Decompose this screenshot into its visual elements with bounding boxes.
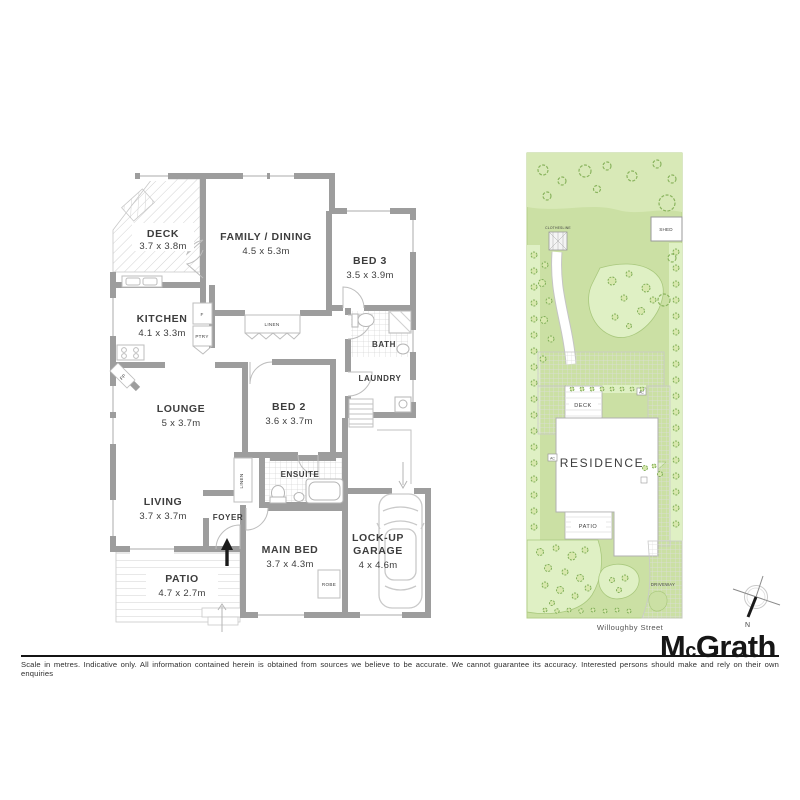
room-dims-patio: 4.7 x 2.7m: [158, 588, 205, 599]
garden-bed-right: [669, 243, 682, 541]
room-dims-deck: 3.7 x 3.8m: [139, 241, 186, 252]
room-label-family-dining: FAMILY / DINING: [220, 231, 312, 243]
room-dims-garage: 4 x 4.6m: [359, 560, 398, 571]
floorplan-page: DECK 3.7 x 3.8m FAMILY / DINING 4.5 x 5.…: [0, 0, 800, 800]
disclaimer-text: Scale in metres. Indicative only. All in…: [21, 655, 779, 678]
label-robe: ROBE: [322, 582, 336, 587]
clothesline-label: CLOTHESLINE: [545, 226, 571, 230]
kitchen-sink-icon: [122, 276, 162, 287]
hws-unit: [641, 477, 647, 483]
plan-canvas: DECK 3.7 x 3.8m FAMILY / DINING 4.5 x 5.…: [0, 0, 800, 800]
label-linen: LINEN: [264, 322, 279, 327]
room-dims-bed2: 3.6 x 3.7m: [265, 416, 312, 427]
room-label-garage-2: GARAGE: [353, 545, 403, 557]
label-fridge: F: [200, 312, 203, 317]
compass-icon: N: [733, 576, 780, 629]
patio-step: [208, 617, 238, 625]
label-bath: BATH: [372, 340, 396, 349]
room-label-bed3: BED 3: [353, 255, 387, 267]
floor-plan: DECK 3.7 x 3.8m FAMILY / DINING 4.5 x 5.…: [108, 171, 431, 632]
compass-north-label: N: [745, 622, 750, 629]
ac-label-2: AC: [550, 457, 555, 461]
label-pantry: PTRY: [195, 334, 208, 339]
room-dims-main-bed: 3.7 x 4.3m: [266, 559, 313, 570]
room-dims-living: 3.7 x 3.7m: [139, 511, 186, 522]
room-label-lounge: LOUNGE: [157, 403, 206, 415]
room-label-living: LIVING: [144, 496, 183, 508]
driveway-label: DRIVEWAY: [651, 582, 675, 587]
room-label-kitchen: KITCHEN: [137, 313, 188, 325]
shed-label: SHED: [659, 227, 673, 232]
room-label-main-bed: MAIN BED: [262, 544, 319, 556]
residence-label: RESIDENCE: [560, 456, 644, 470]
ac-label-1: AC: [639, 391, 644, 395]
fridge-pantry: [193, 303, 212, 354]
room-label-bed2: BED 2: [272, 401, 306, 413]
room-label-garage-1: LOCK-UP: [352, 532, 404, 544]
cooktop-icon: [117, 345, 144, 360]
room-label-deck: DECK: [147, 228, 179, 240]
driveway-island: [649, 591, 667, 611]
site-deck-label: DECK: [574, 403, 592, 409]
linen-closet: [245, 315, 300, 339]
garage-arrow-icon: [399, 462, 407, 488]
site-patio-label: PATIO: [579, 524, 598, 530]
room-label-patio: PATIO: [165, 573, 199, 585]
label-foyer: FOYER: [213, 513, 244, 522]
street-label: Willoughby Street: [597, 623, 664, 632]
room-dims-bed3: 3.5 x 3.9m: [346, 270, 393, 281]
garden-bed-bottom-center: [599, 564, 639, 599]
clothesline-icon: [549, 232, 567, 250]
site-plan: SHED CLOTHESLINE DECK RESIDENCE AC AC PA: [527, 153, 682, 632]
room-dims-lounge: 5 x 3.7m: [162, 418, 201, 429]
laundry-tub-icon: [395, 397, 411, 412]
label-linen-2: LINEN: [239, 473, 244, 488]
room-dims-family-dining: 4.5 x 5.3m: [242, 246, 289, 257]
room-dims-kitchen: 4.1 x 3.3m: [138, 328, 185, 339]
label-laundry: LAUNDRY: [358, 374, 401, 383]
label-ensuite: ENSUITE: [281, 470, 320, 479]
